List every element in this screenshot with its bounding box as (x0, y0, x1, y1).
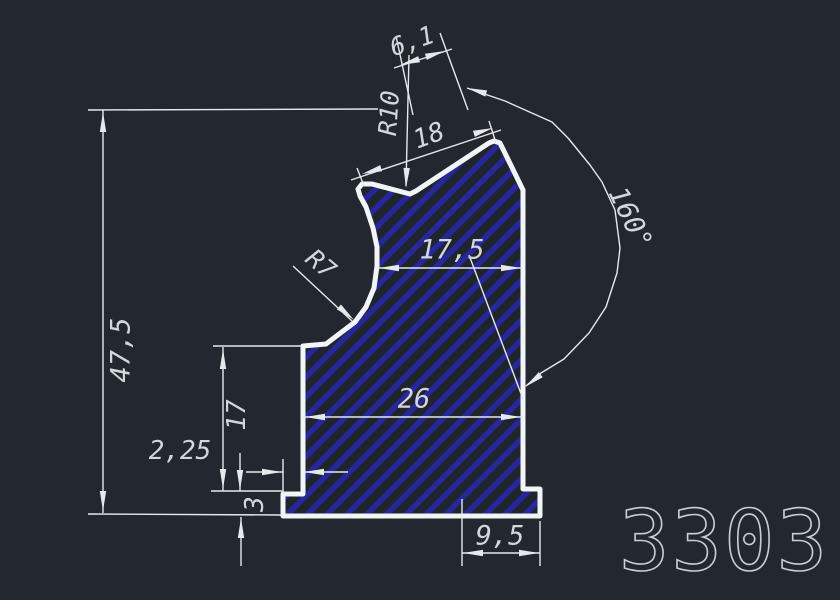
dim-label-17: 17 (222, 399, 252, 431)
dim-label-17-5: 17,5 (419, 235, 484, 266)
cad-viewport[interactable]: 6,1R1018160°17,5R747,526172,2539,53303 (0, 0, 840, 600)
dim-label-26: 26 (398, 384, 431, 415)
ext-47-5-bottom (88, 514, 281, 515)
part-number-text: 3303 (619, 492, 829, 590)
dim-label-9-5: 9,5 (476, 521, 525, 552)
dim-label-r10: R10 (373, 89, 405, 136)
drawing-canvas[interactable]: 6,1R1018160°17,5R747,526172,2539,53303 (0, 0, 840, 600)
dim-label-47-5: 47,5 (106, 317, 137, 382)
ext-47-5-top (88, 109, 378, 110)
dim-label-2-25: 2,25 (149, 436, 212, 466)
dim-label-3: 3 (240, 496, 270, 513)
